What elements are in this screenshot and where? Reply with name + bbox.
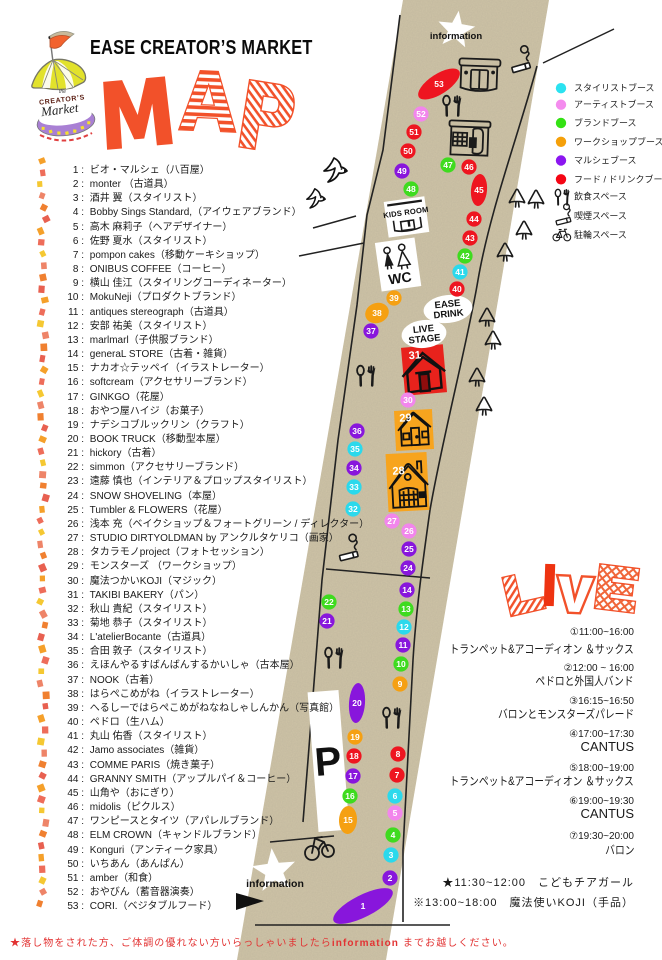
- svg-text:10: 10: [396, 659, 406, 669]
- svg-text:the: the: [59, 89, 66, 95]
- svg-text:41: 41: [455, 267, 465, 277]
- svg-text:51: 51: [409, 127, 419, 137]
- svg-text:43: 43: [465, 233, 475, 243]
- svg-text:8: 8: [396, 749, 401, 759]
- svg-text:30: 30: [403, 395, 413, 405]
- svg-text:50: 50: [403, 146, 413, 156]
- svg-text:7: 7: [395, 770, 400, 780]
- svg-text:5: 5: [393, 808, 398, 818]
- svg-text:40: 40: [452, 284, 462, 294]
- svg-text:28: 28: [392, 465, 405, 478]
- svg-text:24: 24: [403, 563, 413, 573]
- svg-text:48: 48: [406, 184, 416, 194]
- svg-text:27: 27: [387, 516, 397, 526]
- svg-text:14: 14: [402, 585, 412, 595]
- svg-text:38: 38: [372, 308, 382, 318]
- svg-text:53: 53: [434, 79, 444, 89]
- svg-text:29: 29: [399, 412, 412, 425]
- svg-text:2: 2: [388, 873, 393, 883]
- svg-text:6: 6: [393, 791, 398, 801]
- svg-text:52: 52: [416, 109, 426, 119]
- svg-text:4: 4: [391, 830, 396, 840]
- svg-text:31: 31: [408, 349, 421, 362]
- svg-text:マルシェブース: マルシェブース: [574, 155, 637, 166]
- svg-text:ワークショップブース: ワークショップブース: [574, 136, 662, 147]
- svg-text:39: 39: [389, 293, 399, 303]
- svg-text:アーティストブース: アーティストブース: [574, 99, 654, 110]
- svg-text:12: 12: [399, 622, 409, 632]
- svg-text:42: 42: [460, 251, 470, 261]
- svg-text:25: 25: [404, 544, 414, 554]
- svg-text:9: 9: [398, 679, 403, 689]
- svg-text:フード / ドリンクブース: フード / ドリンクブース: [574, 173, 662, 184]
- svg-text:44: 44: [469, 214, 479, 224]
- svg-text:駐輪スペース: 駐輪スペース: [574, 229, 627, 240]
- svg-text:WC: WC: [387, 268, 412, 287]
- svg-text:喫煙スペース: 喫煙スペース: [574, 210, 627, 221]
- svg-text:49: 49: [397, 166, 407, 176]
- svg-text:ブランドブース: ブランドブース: [574, 117, 637, 128]
- svg-text:information: information: [430, 31, 482, 42]
- svg-text:11: 11: [399, 640, 408, 650]
- svg-text:47: 47: [443, 160, 453, 170]
- svg-text:13: 13: [401, 604, 411, 614]
- svg-text:26: 26: [404, 526, 414, 536]
- svg-text:飲食スペース: 飲食スペース: [574, 191, 627, 202]
- svg-text:45: 45: [474, 185, 484, 195]
- svg-text:3: 3: [389, 850, 394, 860]
- svg-text:46: 46: [464, 162, 474, 172]
- svg-text:スタイリストブース: スタイリストブース: [574, 82, 655, 93]
